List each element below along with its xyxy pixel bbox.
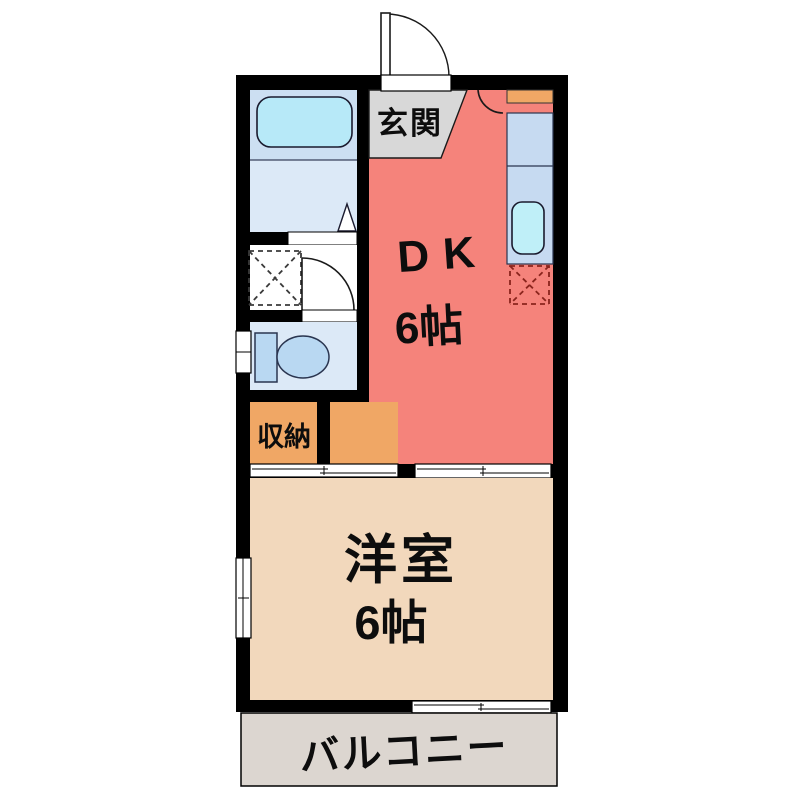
kitchen-sink-icon (512, 202, 544, 254)
western-room-size-label: 6帖 (354, 596, 427, 649)
toilet-window-icon (236, 331, 251, 373)
western-room-label: 洋室 (344, 531, 458, 590)
balcony-window-icon (412, 701, 551, 713)
dk-size-label: 6帖 (394, 301, 465, 354)
toilet-door-opening (302, 310, 357, 322)
bathtub-icon (257, 97, 352, 147)
entrance-label: 玄関 (377, 106, 443, 141)
dk-label: DK (396, 227, 491, 282)
closet-sliding-door (250, 464, 398, 477)
dk-sliding-door (415, 464, 551, 478)
bathroom-door-opening (288, 232, 357, 245)
storage-floor-right (330, 402, 398, 464)
floorplan-canvas: 玄関 DK 6帖 収納 洋室 6帖 バルコニー (0, 0, 800, 800)
floorplan-drawing: 玄関 DK 6帖 収納 洋室 6帖 バルコニー (0, 0, 800, 800)
washroom-floor (250, 245, 357, 310)
shoe-cabinet (507, 90, 553, 103)
toilet-icon (255, 333, 329, 382)
storage-label: 収納 (257, 421, 311, 452)
western-room-window-icon (236, 558, 251, 638)
